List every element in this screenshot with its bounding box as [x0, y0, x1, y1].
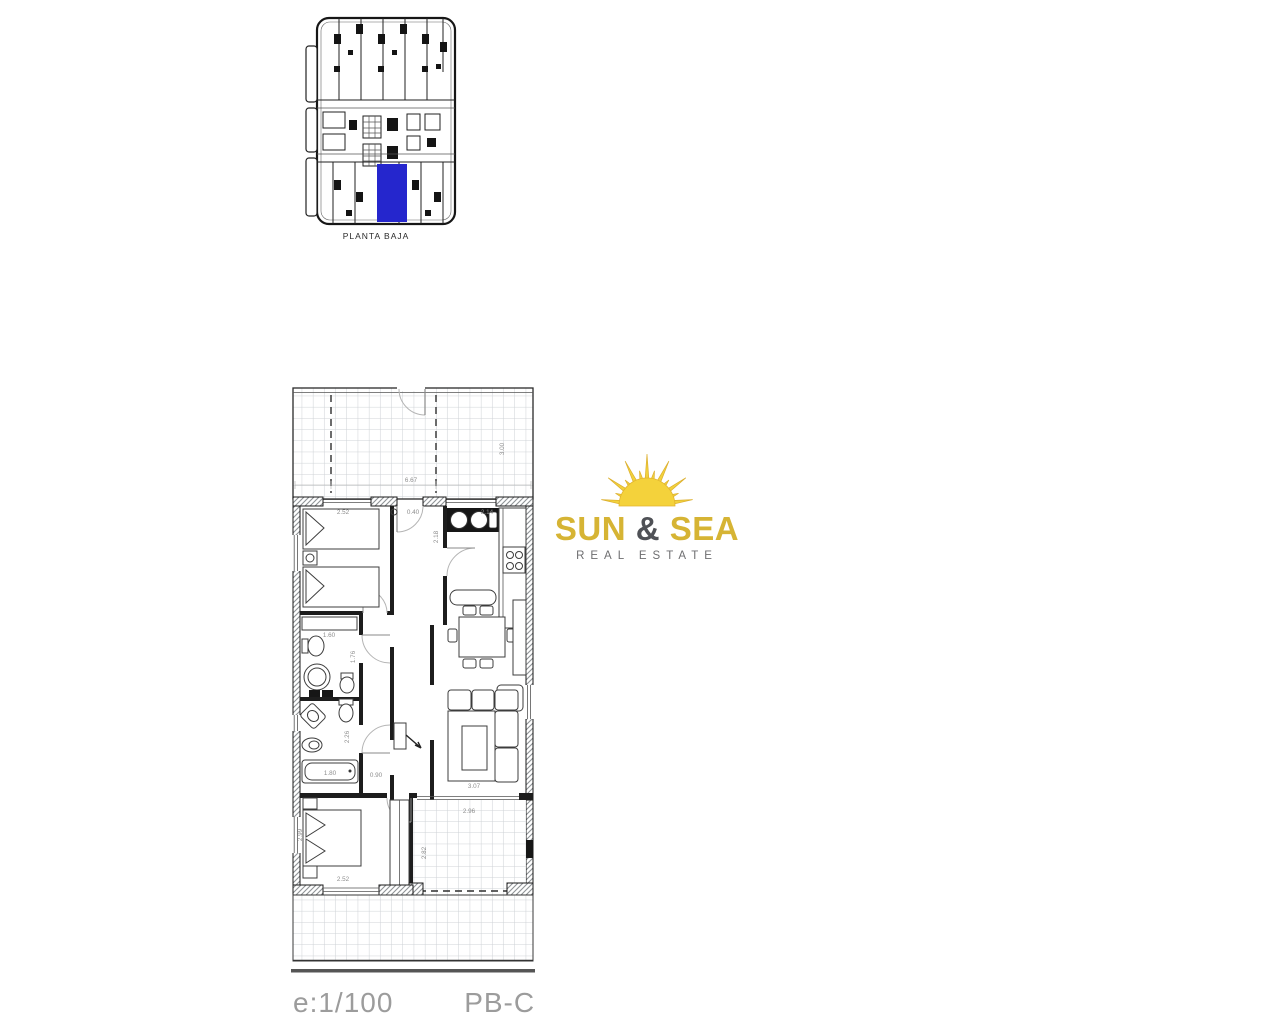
logo-word-sun: SUN — [555, 510, 626, 547]
logo-ampersand: & — [636, 510, 660, 547]
dim-bath1-width: 1.60 — [323, 632, 336, 639]
dim-kitchen-width: 2.14 — [481, 509, 494, 516]
dim-bathtub: 1.80 — [324, 770, 337, 777]
dim-terrace2-depth: 2.82 — [421, 846, 428, 859]
bedroom1: 2.52 0.40 — [303, 509, 420, 607]
dim-hall-width: 0.90 — [370, 772, 383, 779]
dim-entry-niche: 0.40 — [407, 509, 420, 516]
dim-bedroom1-width: 2.52 — [337, 509, 350, 516]
bedroom2: 2.52 2.99 — [297, 798, 409, 890]
highlighted-unit — [377, 164, 407, 222]
dim-kitchen-depth: 2.18 — [433, 530, 440, 543]
plan-code-label: PB-C — [464, 987, 535, 1018]
logo: SUN & SEA REAL ESTATE — [552, 448, 742, 562]
bathroom1: 1.60 1.76 — [300, 617, 362, 701]
page: PLANTA BAJA 6.67 3.00 — [0, 0, 1280, 1024]
ground-line — [291, 969, 535, 973]
dim-terrace2-width: 2.96 — [463, 808, 476, 815]
terrace-top: 6.67 3.00 — [293, 386, 533, 499]
dim-bedroom2-width: 2.52 — [337, 876, 350, 883]
terrace-bottom — [293, 885, 533, 961]
logo-subtitle: REAL ESTATE — [552, 550, 742, 562]
scale-label: e:1/100 — [293, 987, 393, 1018]
dim-bath1-depth: 1.76 — [350, 650, 357, 663]
dim-terrace-width: 6.67 — [405, 477, 418, 484]
planta-baja-caption: PLANTA BAJA — [291, 231, 461, 241]
logo-word-sea: SEA — [670, 510, 739, 547]
logo-title: SUN & SEA — [552, 512, 742, 545]
dim-bath2-depth: 2.26 — [344, 730, 351, 743]
main-floor-plan: 6.67 3.00 — [291, 385, 535, 977]
sun-icon — [582, 448, 712, 510]
overview-plan — [303, 12, 461, 234]
plan-footer: e:1/100 PB-C — [293, 987, 535, 1019]
dim-terrace-depth: 3.00 — [499, 442, 506, 455]
terrace-rear: 2.96 2.82 — [409, 800, 533, 895]
dim-bedroom2-depth: 2.99 — [297, 828, 304, 841]
bathroom2: 1.80 2.26 0.90 — [300, 699, 383, 783]
dim-living-width: 3.07 — [468, 783, 481, 790]
